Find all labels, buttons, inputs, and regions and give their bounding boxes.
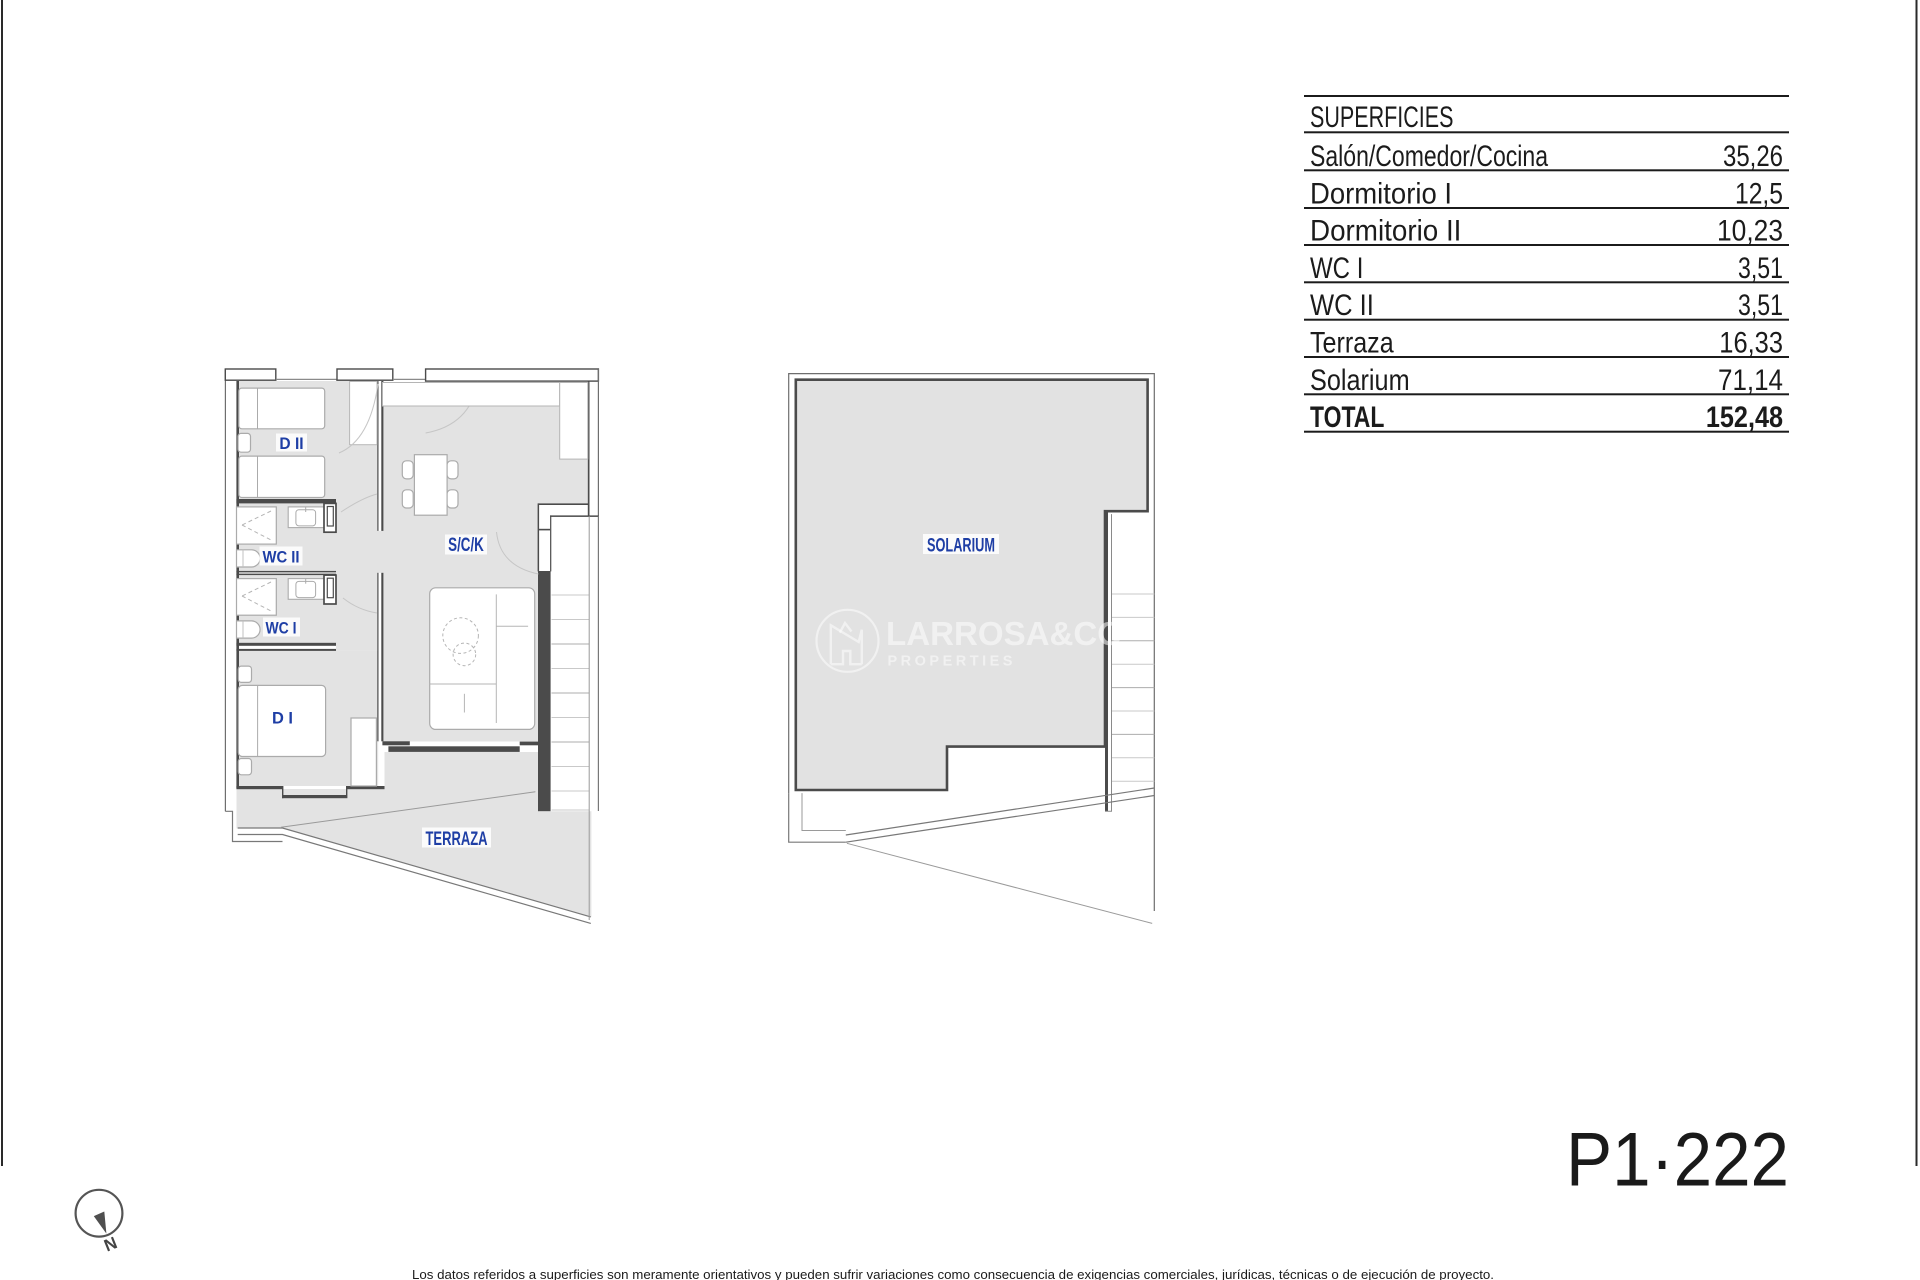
svg-text:S/C/K: S/C/K	[448, 535, 484, 556]
svg-text:PROPERTIES: PROPERTIES	[888, 654, 1016, 670]
svg-text:Terraza: Terraza	[1310, 327, 1394, 360]
svg-text:Solarium: Solarium	[1310, 364, 1410, 397]
svg-text:Dormitorio II: Dormitorio II	[1310, 215, 1461, 248]
svg-text:71,14: 71,14	[1718, 364, 1783, 397]
svg-text:35,26: 35,26	[1723, 140, 1783, 173]
svg-text:WC II: WC II	[263, 548, 300, 567]
svg-text:SOLARIUM: SOLARIUM	[927, 536, 995, 557]
svg-text:152,48: 152,48	[1706, 401, 1783, 434]
svg-text:3,51: 3,51	[1738, 252, 1783, 285]
svg-text:D I: D I	[272, 709, 293, 728]
svg-text:LARROSA&CO: LARROSA&CO	[886, 615, 1123, 652]
svg-text:Dormitorio I: Dormitorio I	[1310, 177, 1452, 210]
svg-text:10,23: 10,23	[1717, 215, 1783, 248]
svg-text:D II: D II	[279, 434, 303, 453]
svg-text:Salón/Comedor/Cocina: Salón/Comedor/Cocina	[1310, 140, 1548, 173]
svg-text:3,51: 3,51	[1738, 289, 1783, 322]
svg-text:TOTAL: TOTAL	[1310, 401, 1384, 434]
svg-text:WC I: WC I	[1310, 252, 1363, 285]
svg-text:SUPERFICIES: SUPERFICIES	[1310, 101, 1454, 134]
svg-text:12,5: 12,5	[1735, 177, 1783, 210]
svg-text:WC II: WC II	[1310, 289, 1374, 322]
svg-text:P1·222: P1·222	[1566, 1118, 1789, 1203]
svg-text:16,33: 16,33	[1719, 327, 1783, 360]
svg-text:Los datos referidos a superfic: Los datos referidos a superficies son me…	[412, 1267, 1494, 1280]
svg-text:WC I: WC I	[266, 619, 297, 638]
svg-text:TERRAZA: TERRAZA	[426, 829, 488, 850]
